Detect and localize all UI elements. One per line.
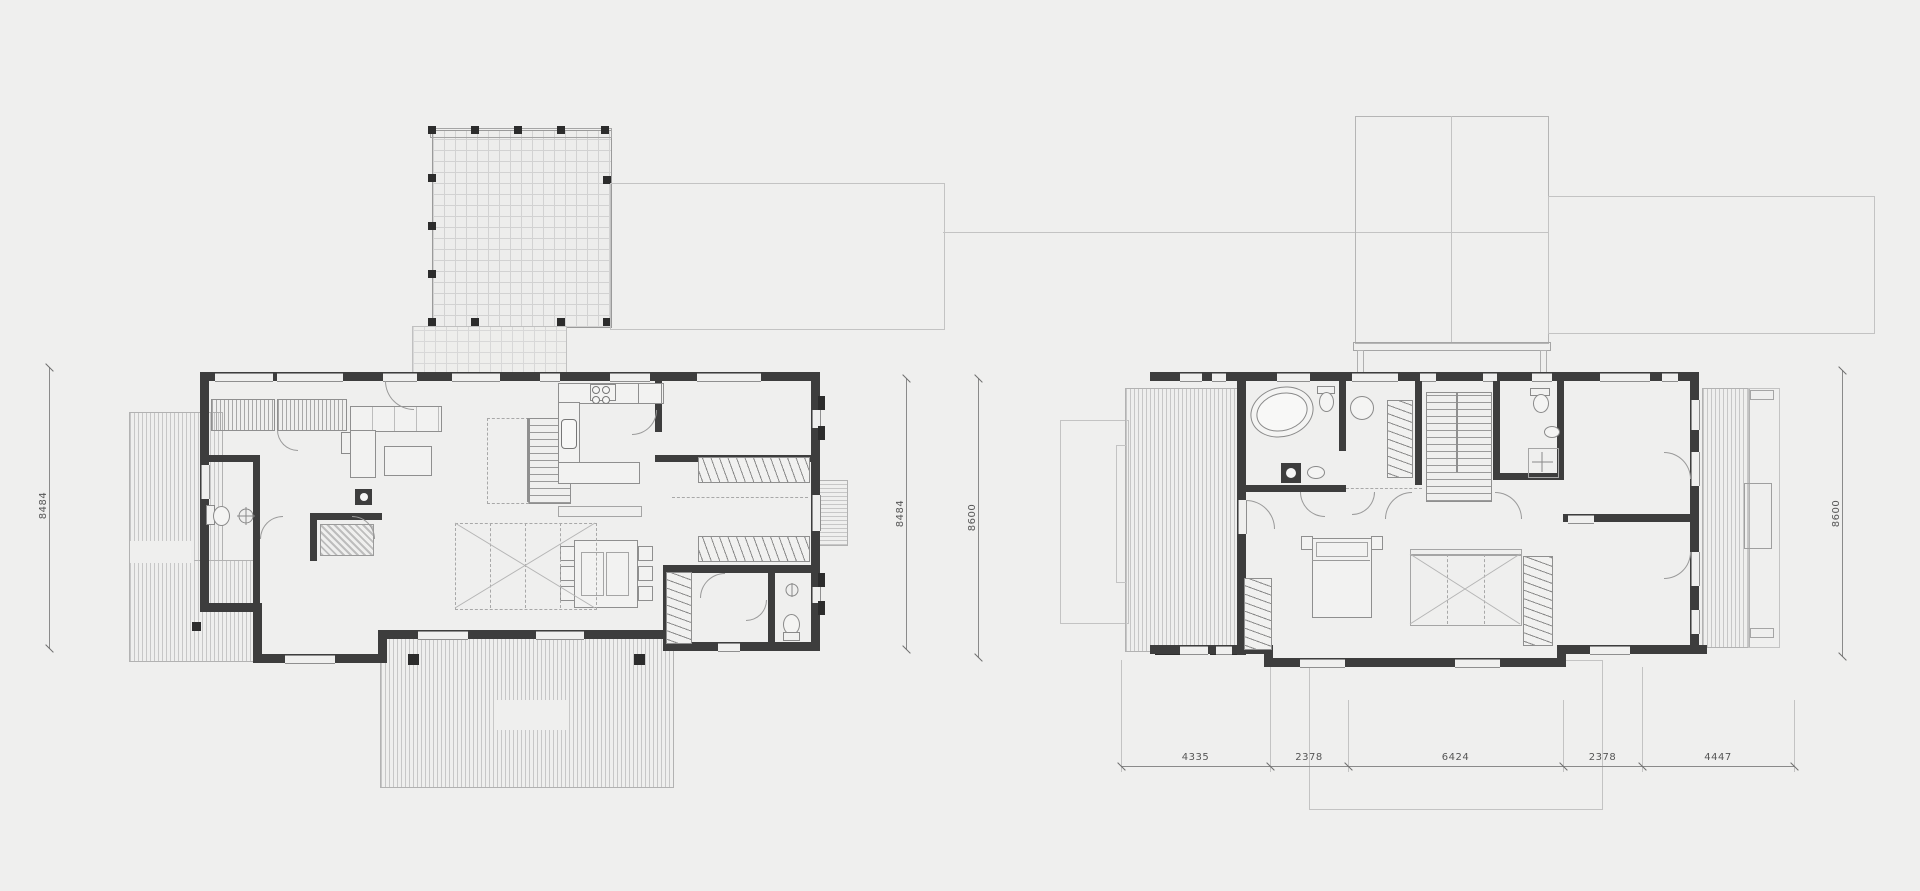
closet bbox=[1244, 578, 1272, 650]
door-arc bbox=[1300, 492, 1325, 517]
window bbox=[1180, 646, 1208, 655]
void-cross-icon bbox=[1410, 554, 1520, 624]
closet bbox=[1387, 400, 1413, 478]
window bbox=[1600, 373, 1650, 382]
staircase bbox=[1426, 392, 1492, 502]
balcony-sill bbox=[1750, 628, 1774, 638]
window bbox=[1216, 646, 1232, 655]
upper-floor-plan: 8600 4335 2378 6424 2378 4447 bbox=[0, 0, 1920, 891]
door-arc bbox=[1495, 492, 1522, 519]
window bbox=[1180, 373, 1202, 382]
roof-outline bbox=[1548, 196, 1875, 334]
dim-label: 8600 bbox=[1831, 500, 1842, 527]
washing-machine-door bbox=[1286, 468, 1296, 478]
floorplan-canvas: 8484 8484 8600 bbox=[0, 0, 1920, 891]
balcony-sill bbox=[1750, 390, 1774, 400]
west-balcony bbox=[1125, 388, 1240, 652]
shower-cross-icon bbox=[1528, 448, 1557, 476]
pergola-roof-outline bbox=[1355, 116, 1549, 344]
dim-label: 6424 bbox=[1348, 752, 1563, 763]
door-arc bbox=[1664, 552, 1691, 579]
window bbox=[1352, 373, 1398, 382]
window bbox=[1212, 373, 1226, 382]
window bbox=[1300, 659, 1345, 668]
balcony-door bbox=[1691, 552, 1700, 586]
wall-bath-south bbox=[1246, 485, 1346, 492]
door-arc bbox=[1246, 500, 1275, 529]
extension-line bbox=[1794, 700, 1795, 772]
closet bbox=[1523, 556, 1553, 646]
balcony-sill bbox=[1116, 445, 1127, 583]
bed-blanket-line bbox=[1312, 560, 1370, 561]
window bbox=[1590, 646, 1630, 655]
balcony-door bbox=[1691, 452, 1700, 486]
toilet-icon bbox=[1319, 392, 1334, 412]
stair-rail bbox=[1456, 392, 1458, 472]
nightstand bbox=[1301, 536, 1313, 550]
east-balcony bbox=[1702, 388, 1750, 648]
lower-deck-outline bbox=[1309, 660, 1603, 810]
wall-bath-east bbox=[1339, 381, 1346, 451]
window bbox=[1691, 400, 1700, 430]
dim-label: 2378 bbox=[1563, 752, 1642, 763]
window bbox=[1455, 659, 1500, 668]
dim-chain-line bbox=[1121, 766, 1794, 767]
dim-label: 2378 bbox=[1270, 752, 1348, 763]
roof-centerline bbox=[1451, 116, 1452, 342]
roof-beam bbox=[1353, 342, 1551, 351]
toilet-icon bbox=[1533, 394, 1549, 413]
door-opening bbox=[1568, 515, 1594, 524]
window bbox=[1662, 373, 1678, 382]
nightstand bbox=[1371, 536, 1383, 550]
wall-south-right bbox=[1557, 645, 1707, 654]
window bbox=[1532, 373, 1552, 382]
corridor-dash bbox=[1346, 488, 1422, 490]
wall-closet-east bbox=[1415, 381, 1422, 485]
door-arc bbox=[1664, 452, 1691, 479]
window bbox=[1420, 373, 1436, 382]
door-arc bbox=[1385, 492, 1412, 519]
dim-label: 4447 bbox=[1642, 752, 1794, 763]
wall-wc-west bbox=[1493, 381, 1500, 480]
wall-jog bbox=[1557, 645, 1566, 667]
laundry-basket-icon bbox=[1350, 396, 1374, 420]
planter-box bbox=[1744, 483, 1772, 549]
washbasin-icon bbox=[1544, 426, 1560, 438]
roof-post bbox=[1540, 350, 1547, 374]
dim-label: 4335 bbox=[1121, 752, 1270, 763]
door-arc bbox=[1352, 492, 1375, 515]
window bbox=[1691, 610, 1700, 634]
window bbox=[1277, 373, 1310, 382]
roof-post bbox=[1357, 350, 1364, 374]
bed-pillow bbox=[1316, 542, 1368, 557]
washbasin-icon bbox=[1307, 466, 1325, 479]
